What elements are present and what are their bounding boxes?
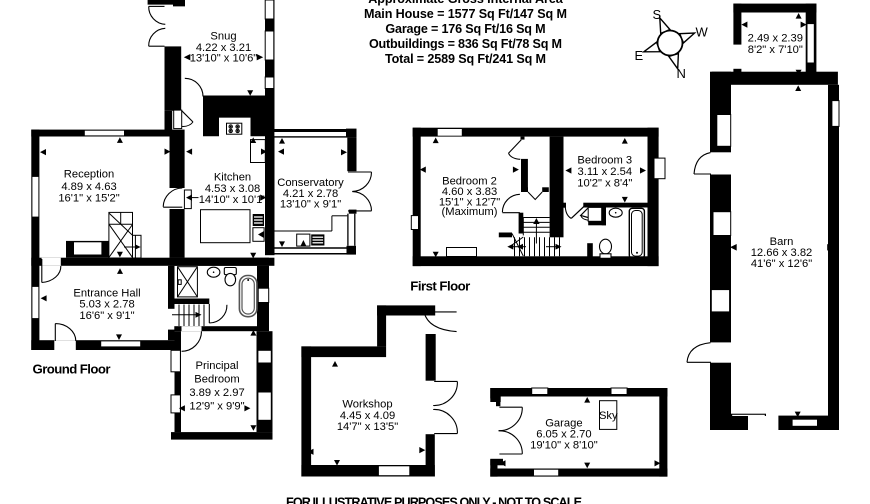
svg-text:Bedroom 3: Bedroom 3 — [577, 155, 632, 167]
svg-text:Total = 2589 Sq Ft/241 Sq M: Total = 2589 Sq Ft/241 Sq M — [385, 52, 546, 66]
svg-text:Sky: Sky — [599, 410, 618, 422]
svg-text:12'9" x 9'9": 12'9" x 9'9" — [189, 401, 244, 413]
svg-text:Snug: Snug — [210, 31, 236, 43]
svg-text:E: E — [635, 48, 644, 63]
svg-text:Ground Floor: Ground Floor — [33, 362, 111, 377]
svg-text:Workshop: Workshop — [342, 399, 392, 411]
svg-text:Main House = 1577 Sq Ft/147 Sq: Main House = 1577 Sq Ft/147 Sq M — [364, 7, 567, 21]
svg-text:16'6" x 9'1": 16'6" x 9'1" — [79, 310, 134, 322]
svg-text:13'10" x 10'6": 13'10" x 10'6" — [190, 53, 258, 65]
svg-text:Principal: Principal — [196, 360, 239, 372]
svg-text:Reception: Reception — [64, 169, 114, 181]
svg-text:Kitchen: Kitchen — [214, 172, 251, 184]
svg-text:4.89 x 4.63: 4.89 x 4.63 — [61, 181, 116, 193]
svg-text:(Maximum): (Maximum) — [442, 206, 498, 218]
svg-text:W: W — [696, 25, 709, 40]
svg-text:4.53 x 3.08: 4.53 x 3.08 — [205, 183, 260, 195]
svg-text:First Floor: First Floor — [410, 279, 470, 294]
svg-text:Garage = 176 Sq Ft/16 Sq M: Garage = 176 Sq Ft/16 Sq M — [385, 22, 545, 36]
svg-text:16'1" x 15'2": 16'1" x 15'2" — [58, 193, 119, 205]
svg-text:S: S — [653, 7, 662, 22]
svg-text:19'10" x 8'10": 19'10" x 8'10" — [530, 440, 598, 452]
svg-text:FOR ILLUSTRATIVE PURPOSES ONLY: FOR ILLUSTRATIVE PURPOSES ONLY - NOT TO … — [286, 496, 582, 504]
svg-text:2.49 x 2.39: 2.49 x 2.39 — [748, 33, 803, 45]
svg-text:3.89 x 2.97: 3.89 x 2.97 — [189, 387, 244, 399]
svg-text:3.11 x 2.54: 3.11 x 2.54 — [578, 166, 633, 178]
svg-text:Conservatory: Conservatory — [277, 177, 344, 189]
svg-text:10'2" x 8'4": 10'2" x 8'4" — [577, 177, 632, 189]
svg-text:5.03 x 2.78: 5.03 x 2.78 — [79, 299, 134, 311]
svg-text:14'7" x 13'5": 14'7" x 13'5" — [337, 421, 398, 433]
svg-text:Bedroom: Bedroom — [194, 374, 239, 386]
svg-text:Approximate Gross Internal Are: Approximate Gross Internal Area — [368, 0, 564, 6]
svg-text:Outbuildings = 836 Sq Ft/78 Sq: Outbuildings = 836 Sq Ft/78 Sq M — [369, 37, 562, 51]
svg-text:N: N — [677, 66, 686, 81]
svg-text:8'2" x 7'10": 8'2" x 7'10" — [748, 44, 803, 56]
svg-text:Garage: Garage — [545, 417, 582, 429]
svg-text:41'6" x 12'6": 41'6" x 12'6" — [751, 258, 812, 270]
svg-text:14'10" x 10'1": 14'10" x 10'1" — [199, 194, 267, 206]
svg-text:13'10" x 9'1": 13'10" x 9'1" — [280, 199, 341, 211]
